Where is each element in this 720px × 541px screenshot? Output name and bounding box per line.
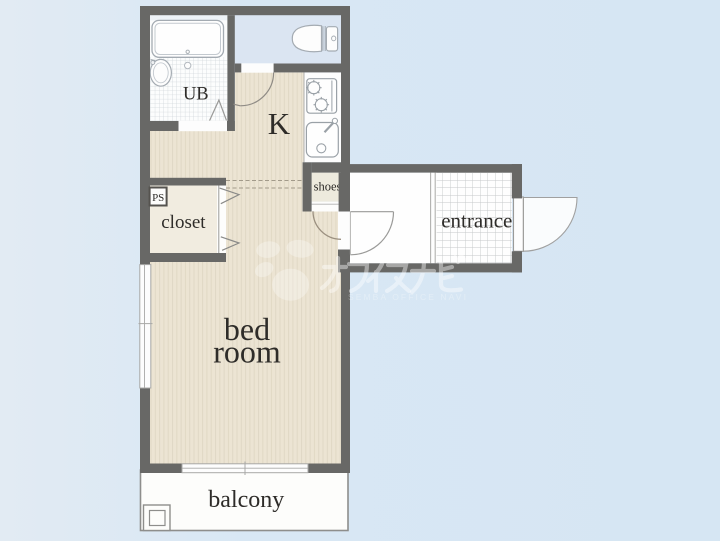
svg-text:K: K [268,106,291,141]
svg-text:entrance: entrance [441,209,512,233]
svg-text:PS: PS [152,192,164,204]
svg-text:room: room [213,333,281,369]
svg-text:UB: UB [183,85,209,105]
svg-text:SEMBA OFFICE NAVI: SEMBA OFFICE NAVI [348,292,468,302]
svg-text:shoes: shoes [314,180,342,194]
svg-text:balcony: balcony [208,487,284,513]
svg-text:closet: closet [161,212,206,233]
